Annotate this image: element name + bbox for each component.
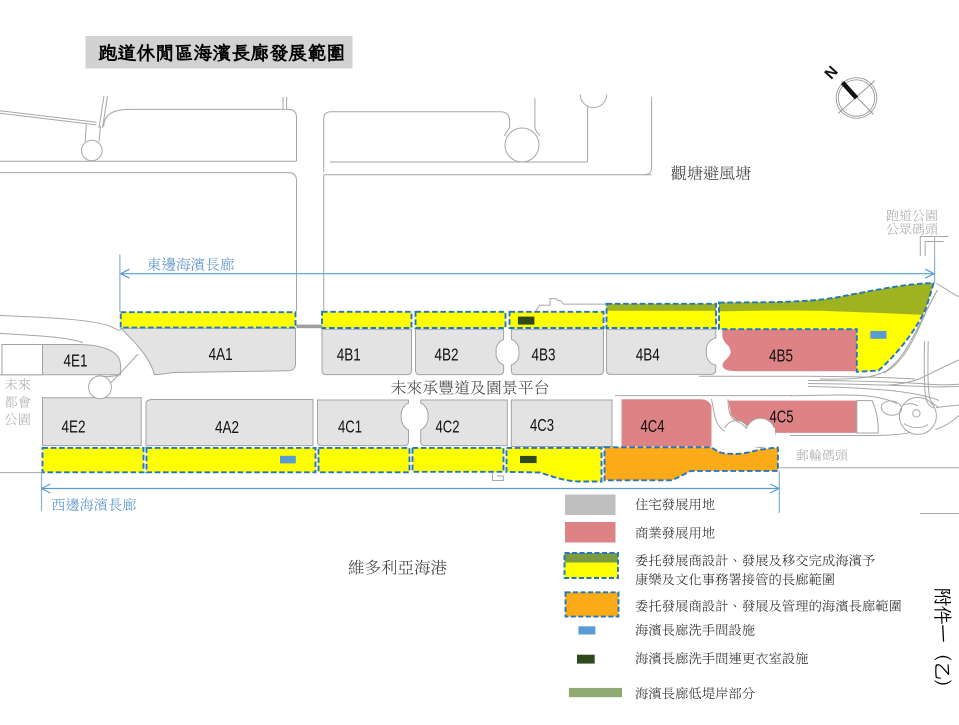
svg-text:4B1: 4B1 (337, 344, 361, 364)
svg-text:4A1: 4A1 (209, 344, 233, 364)
svg-text:4A2: 4A2 (215, 417, 239, 437)
svg-text:4B5: 4B5 (769, 345, 793, 365)
svg-text:4E2: 4E2 (62, 416, 86, 436)
svg-text:4C5: 4C5 (770, 407, 794, 427)
svg-text:4C3: 4C3 (530, 415, 554, 435)
svg-text:4C1: 4C1 (338, 416, 362, 436)
svg-text:4B4: 4B4 (636, 345, 660, 365)
svg-text:4B2: 4B2 (435, 344, 459, 364)
svg-text:4C4: 4C4 (641, 416, 665, 436)
svg-text:4B3: 4B3 (532, 344, 556, 364)
svg-text:4E1: 4E1 (64, 350, 88, 370)
svg-text:4C2: 4C2 (436, 416, 460, 436)
